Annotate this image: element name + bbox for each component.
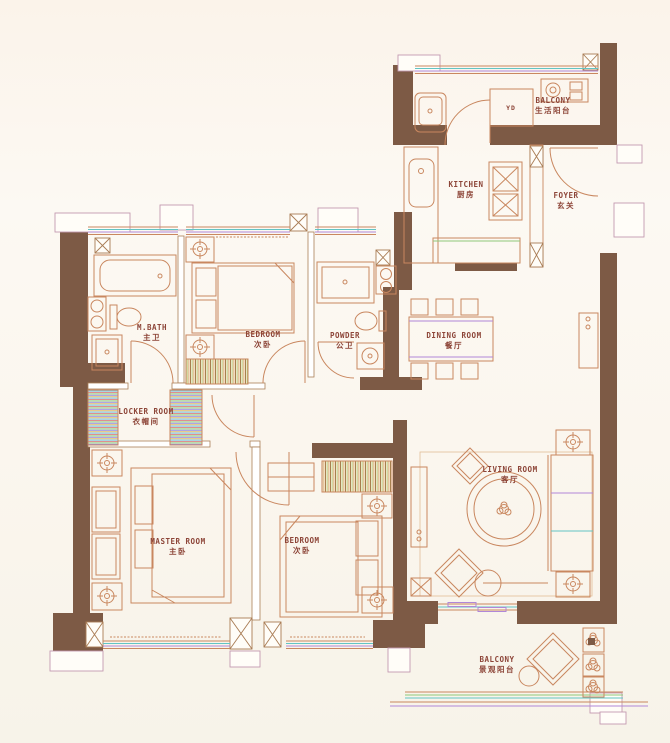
room-label-en: BALCONY: [479, 655, 515, 665]
room-label-en: LIVING ROOM: [482, 465, 537, 475]
room-label-en: M.BATH: [137, 323, 167, 333]
bedroom-top-furniture: [186, 237, 294, 384]
laundry-annotation: YD: [506, 104, 516, 112]
room-label-zh: 餐厅: [426, 341, 481, 351]
room-label-living: LIVING ROOM 客厅: [482, 465, 537, 485]
room-label-en: BEDROOM: [245, 330, 280, 340]
room-label-zh: 衣帽间: [118, 417, 173, 427]
room-label-zh: 客厅: [482, 475, 537, 485]
room-label-balcony-top: BALCONY 生活阳台: [535, 96, 571, 116]
room-label-en: POWDER: [330, 331, 360, 341]
room-label-kitchen: KITCHEN 厨房: [448, 180, 483, 200]
master-furniture: [92, 450, 231, 610]
room-label-bedroom-top: BEDROOM 次卧: [245, 330, 280, 350]
room-label-mbath: M.BATH 主卫: [137, 323, 167, 343]
room-label-zh: 厨房: [448, 190, 483, 200]
foyer-fixtures: [579, 313, 598, 368]
floorplan-page: BALCONY 生活阳台 YD KITCHEN 厨房 FOYER 玄关 DINI…: [0, 0, 670, 743]
room-label-en: FOYER: [553, 191, 578, 201]
balcony-bottom-furniture: [519, 628, 604, 697]
kitchen-fixtures: [404, 147, 522, 263]
room-label-en: BEDROOM: [284, 536, 319, 546]
room-label-zh: 主卫: [137, 333, 167, 343]
room-label-zh: 玄关: [553, 201, 578, 211]
room-label-zh: 生活阳台: [535, 106, 571, 116]
room-label-dining: DINING ROOM 餐厅: [426, 331, 481, 351]
room-label-balcony-bottom: BALCONY 景观阳台: [479, 655, 515, 675]
room-label-en: LOCKER ROOM: [118, 407, 173, 417]
room-label-zh: 主卧: [150, 547, 205, 557]
room-label-zh: 公卫: [330, 341, 360, 351]
room-label-zh: 次卧: [284, 546, 319, 556]
room-label-zh: 景观阳台: [479, 665, 515, 675]
room-label-foyer: FOYER 玄关: [553, 191, 578, 211]
room-label-en: MASTER ROOM: [150, 537, 205, 547]
mbath-fixtures: [88, 255, 176, 370]
room-label-zh: 次卧: [245, 340, 280, 350]
room-label-bedroom2: BEDROOM 次卧: [284, 536, 319, 556]
room-label-locker: LOCKER ROOM 衣帽间: [118, 407, 173, 427]
room-label-master: MASTER ROOM 主卧: [150, 537, 205, 557]
room-label-en: DINING ROOM: [426, 331, 481, 341]
room-label-en: KITCHEN: [448, 180, 483, 190]
room-label-en: BALCONY: [535, 96, 571, 106]
room-label-powder: POWDER 公卫: [330, 331, 360, 351]
living-furniture: [411, 430, 593, 597]
